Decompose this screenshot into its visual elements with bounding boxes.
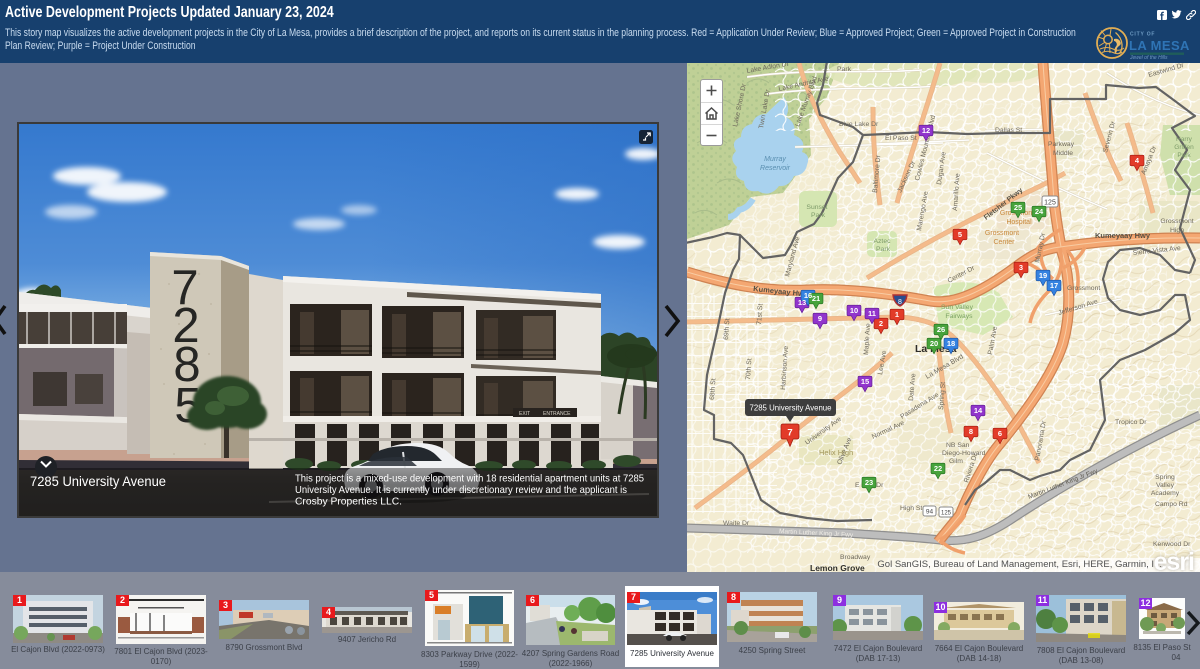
svg-text:94: 94 [926, 509, 934, 516]
svg-text:Sun Valley: Sun Valley [941, 304, 974, 311]
svg-text:Park: Park [1177, 152, 1191, 159]
svg-text:EXIT: EXIT [519, 411, 530, 417]
svg-text:22: 22 [934, 464, 942, 473]
svg-text:2: 2 [879, 319, 883, 328]
svg-text:71st St: 71st St [756, 303, 764, 325]
svg-text:7: 7 [787, 428, 792, 439]
svg-text:Reservoir: Reservoir [760, 165, 791, 172]
svg-text:9: 9 [818, 314, 822, 323]
svg-text:Helix High: Helix High [819, 448, 853, 457]
svg-text:3: 3 [1019, 263, 1023, 272]
svg-text:Gilm: Gilm [949, 458, 963, 465]
svg-text:CITY OF: CITY OF [1130, 32, 1155, 38]
svg-text:Sunset: Sunset [806, 204, 827, 211]
svg-text:High St: High St [900, 505, 922, 512]
svg-text:125: 125 [941, 511, 952, 517]
svg-text:15: 15 [861, 377, 869, 386]
svg-text:Academy: Academy [1151, 490, 1180, 497]
svg-text:7285 University Avenue: 7285 University Avenue [750, 403, 832, 413]
svg-text:Kumeyaay Hwy: Kumeyaay Hwy [1095, 231, 1151, 240]
svg-text:1: 1 [895, 310, 899, 319]
svg-text:Tropico Dr: Tropico Dr [1115, 419, 1147, 426]
svg-text:Hospital: Hospital [1006, 219, 1032, 226]
svg-text:Park: Park [876, 246, 891, 253]
svg-text:Jewel of the Hills: Jewel of the Hills [1129, 55, 1168, 60]
svg-text:This project is a mixed-use de: This project is a mixed-use development … [295, 474, 644, 485]
svg-text:18: 18 [947, 339, 955, 348]
svg-text:LA MESA: LA MESA [1129, 38, 1190, 53]
svg-text:Murray: Murray [764, 156, 786, 163]
svg-text:14: 14 [974, 406, 983, 415]
svg-text:10: 10 [850, 306, 858, 315]
svg-text:Harry: Harry [1176, 136, 1193, 143]
svg-text:6: 6 [998, 429, 1002, 438]
svg-text:Spring: Spring [1155, 474, 1175, 481]
svg-text:Park: Park [811, 212, 826, 219]
svg-text:17: 17 [1050, 281, 1058, 290]
svg-text:Center: Center [993, 239, 1015, 246]
svg-text:NB San: NB San [946, 442, 970, 449]
svg-text:19: 19 [1039, 271, 1047, 280]
svg-text:20: 20 [930, 339, 938, 348]
svg-text:11: 11 [868, 309, 876, 318]
svg-text:Parkway: Parkway [1048, 141, 1075, 148]
svg-text:Grossmont: Grossmont [1160, 218, 1193, 225]
svg-text:Blue Lake Dr: Blue Lake Dr [839, 121, 879, 128]
svg-text:8: 8 [898, 299, 902, 306]
svg-text:25: 25 [1014, 203, 1022, 212]
svg-text:Aztec: Aztec [874, 238, 892, 245]
svg-text:El Paso St: El Paso St [885, 135, 917, 142]
svg-text:High: High [1170, 227, 1184, 234]
svg-text:21: 21 [812, 294, 820, 303]
svg-text:Griffen: Griffen [1174, 144, 1194, 151]
svg-text:24: 24 [1035, 207, 1044, 216]
svg-text:Grossmont: Grossmont [985, 230, 1019, 237]
svg-text:Fairways: Fairways [945, 313, 973, 320]
svg-text:Waite Dr: Waite Dr [723, 520, 750, 527]
svg-text:26: 26 [937, 325, 945, 334]
svg-text:8: 8 [969, 427, 973, 436]
svg-text:Middle: Middle [1053, 150, 1073, 157]
svg-text:Grossmont: Grossmont [1067, 285, 1100, 292]
svg-text:Campo Rd: Campo Rd [1155, 501, 1188, 508]
svg-text:University Avenue. It is curre: University Avenue. It is currently under… [295, 485, 627, 496]
svg-text:23: 23 [865, 478, 873, 487]
svg-text:Park: Park [837, 66, 852, 73]
svg-text:5: 5 [958, 230, 962, 239]
svg-text:Dallas St: Dallas St [995, 127, 1022, 134]
svg-text:ENTRANCE: ENTRANCE [543, 411, 571, 417]
svg-text:12: 12 [922, 126, 930, 135]
svg-text:Valley: Valley [1156, 482, 1175, 489]
svg-text:Diego-Howard: Diego-Howard [942, 450, 986, 457]
svg-text:Crosby Properties LLC.: Crosby Properties LLC. [295, 497, 402, 508]
svg-text:7285 University Avenue: 7285 University Avenue [30, 474, 166, 489]
svg-text:125: 125 [1044, 200, 1056, 207]
